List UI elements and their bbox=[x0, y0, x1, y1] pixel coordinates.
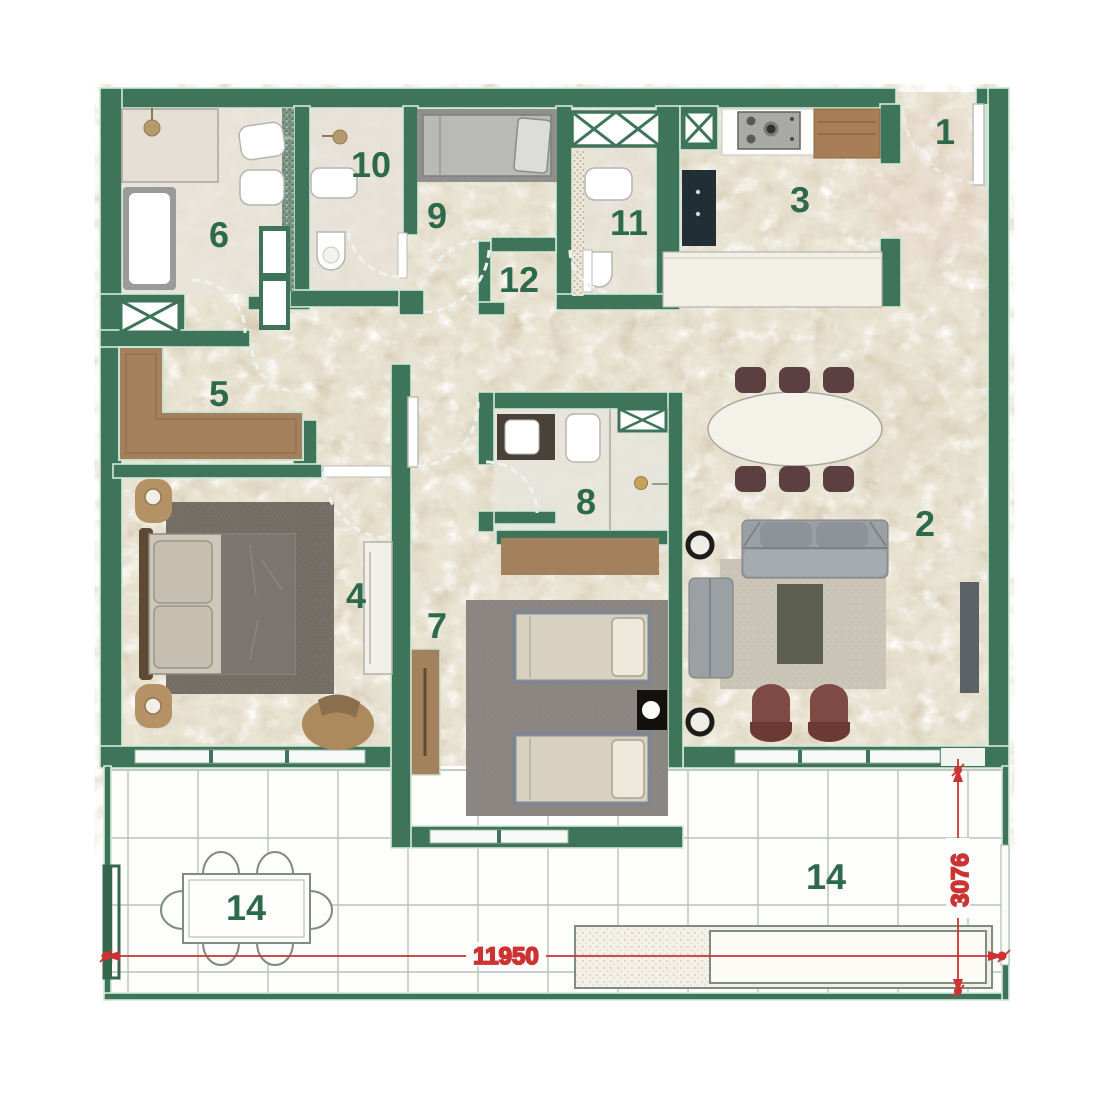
svg-text:14: 14 bbox=[806, 856, 846, 897]
svg-text:6: 6 bbox=[209, 214, 229, 255]
svg-text:9: 9 bbox=[427, 195, 447, 236]
svg-text:5: 5 bbox=[209, 373, 229, 414]
svg-text:10: 10 bbox=[351, 144, 391, 185]
svg-text:11: 11 bbox=[610, 202, 648, 243]
svg-text:3: 3 bbox=[790, 179, 810, 220]
svg-text:12: 12 bbox=[499, 259, 539, 300]
svg-text:2: 2 bbox=[915, 503, 935, 544]
svg-text:3076: 3076 bbox=[947, 853, 974, 906]
svg-text:11950: 11950 bbox=[473, 943, 538, 970]
svg-text:14: 14 bbox=[226, 887, 266, 928]
svg-text:1: 1 bbox=[935, 111, 955, 152]
svg-text:8: 8 bbox=[576, 481, 596, 522]
svg-text:4: 4 bbox=[346, 575, 366, 616]
svg-text:7: 7 bbox=[427, 605, 447, 646]
